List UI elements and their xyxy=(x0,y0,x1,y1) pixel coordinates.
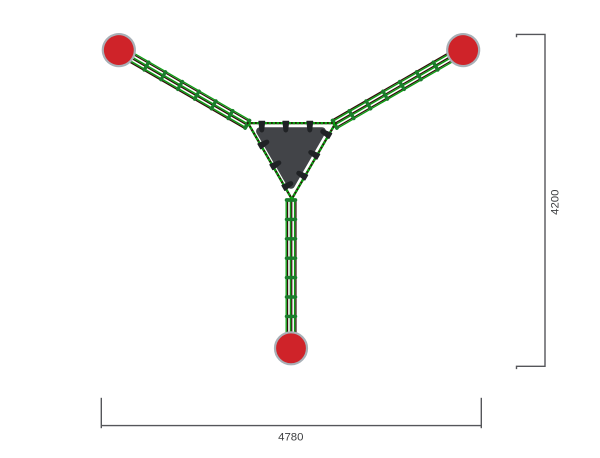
svg-text:4200: 4200 xyxy=(549,190,561,215)
svg-text:4780: 4780 xyxy=(278,431,303,443)
